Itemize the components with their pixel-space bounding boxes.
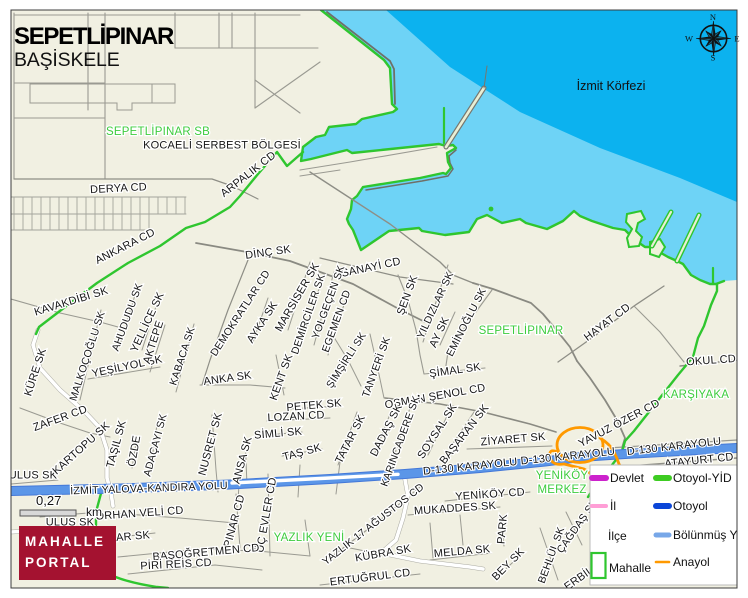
svg-text:SEPETLİPINAR: SEPETLİPINAR: [14, 23, 174, 50]
svg-text:0,27: 0,27: [36, 493, 61, 508]
svg-text:Bölünmüş Y: Bölünmüş Y: [673, 528, 737, 542]
svg-text:PORTAL: PORTAL: [25, 555, 92, 570]
svg-text:SEPETLİPINAR SB: SEPETLİPINAR SB: [106, 125, 210, 138]
svg-text:MAHALLE: MAHALLE: [25, 534, 105, 549]
svg-text:YAZLIK YENİ: YAZLIK YENİ: [274, 531, 345, 544]
svg-text:S: S: [711, 52, 716, 62]
svg-text:SEPETLİPINAR: SEPETLİPINAR: [479, 324, 564, 337]
svg-text:Otoyol-YİD: Otoyol-YİD: [673, 471, 732, 485]
svg-text:YENİKÖY: YENİKÖY: [536, 469, 589, 482]
svg-text:Anayol: Anayol: [673, 555, 710, 569]
svg-text:MERKEZ: MERKEZ: [537, 484, 586, 496]
svg-text:Mahalle: Mahalle: [609, 561, 651, 575]
svg-text:İzmit Körfezi: İzmit Körfezi: [577, 79, 646, 93]
svg-text:KOCAELİ SERBEST BÖLGESİ: KOCAELİ SERBEST BÖLGESİ: [143, 139, 301, 152]
svg-text:KARŞIYAKA: KARŞIYAKA: [663, 389, 729, 401]
svg-text:W: W: [685, 34, 693, 44]
svg-text:km: km: [86, 505, 102, 519]
svg-text:Otoyol: Otoyol: [673, 499, 708, 513]
svg-text:N: N: [710, 12, 716, 22]
svg-text:Devlet: Devlet: [610, 471, 645, 485]
svg-text:İl: İl: [610, 499, 616, 513]
svg-text:ULUS SK: ULUS SK: [9, 470, 58, 482]
svg-text:BAŞİSKELE: BAŞİSKELE: [14, 48, 120, 71]
svg-text:İlçe: İlçe: [608, 529, 627, 543]
